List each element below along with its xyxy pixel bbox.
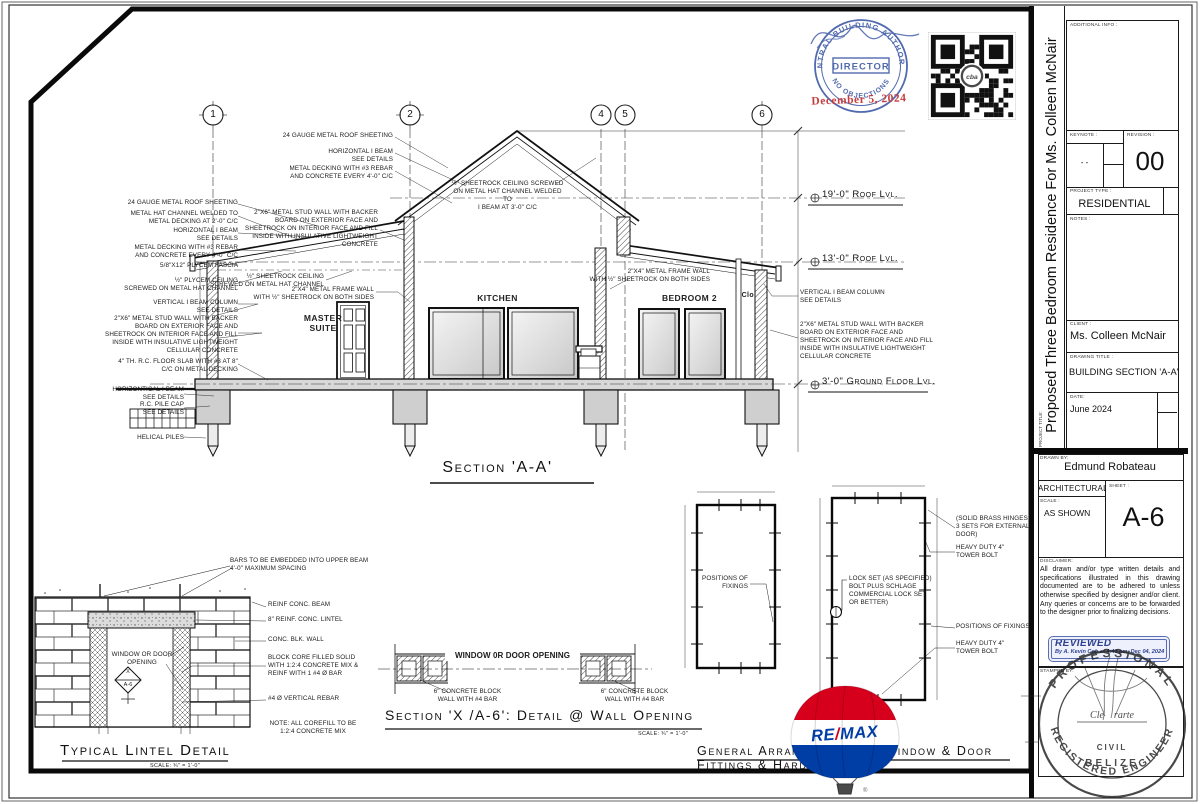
lintel-marker-x: X — [122, 669, 134, 676]
hardware-bolt-bottom: HEAVY DUTY 4" TOWER BOLT — [956, 640, 1004, 656]
keynote-label: KEYNOTE : — [1070, 133, 1097, 138]
date-label: DATE: — [1070, 395, 1085, 400]
section-title: Section 'A-A' — [400, 459, 595, 477]
qr-center-logo: cba — [966, 74, 978, 81]
wallopening-scale: SCALE: ¾" = 1'-0" — [638, 731, 688, 737]
lintel-annotation-beam: REINF CONC. BEAM — [268, 601, 330, 609]
drawing-sheet: 1 2 4 5 6 24 GAUGE METAL ROOF SHEETING M… — [0, 0, 1200, 804]
hardware-fixings-door: POSITIONS OF FIXINGS — [956, 623, 1030, 631]
hardware-fixings-window: POSITIONS OF FIXINGS — [702, 575, 748, 591]
revision-value: 00 — [1123, 146, 1177, 177]
annotation-floor-slab: 4" TH. R.C. FLOOR SLAB WITH #3 AT 8" C/C… — [118, 358, 238, 374]
lintel-annotation-bars: BARS TO BE EMBEDDED INTO UPPER BEAM 4'-0… — [230, 557, 368, 573]
drawing-title-value: BUILDING SECTION 'A-A' — [1069, 367, 1178, 377]
wallopening-block-left: 6" CONCRETE BLOCK WALL WITH #4 BAR — [425, 688, 510, 704]
annotation-stud-wall-right: 2"X6" METAL STUD WALL WITH BACKER BOARD … — [800, 321, 933, 361]
lintel-annotation-note: NOTE: ALL COREFILL TO BE 1:2:4 CONCRETE … — [262, 720, 364, 736]
room-label-closet: Clo. — [738, 292, 760, 299]
wallopening-label: WINDOW 0R DOOR OPENING — [445, 651, 580, 661]
remax-balloon-logo: RE/MAX ® — [777, 682, 913, 804]
date-value: June 2024 — [1070, 404, 1112, 414]
keynote-divider-h2 — [1103, 164, 1123, 165]
lintel-detail-title: Typical Lintel Detail — [60, 742, 230, 759]
annotation-roof-sheeting-left: 24 GAUGE METAL ROOF SHEETING — [128, 199, 238, 207]
drawing-title-label: DRAWING TITLE : — [1070, 355, 1113, 360]
disclaimer-text: All drawn and/or type written details an… — [1040, 566, 1180, 618]
date-divider-h — [1157, 412, 1177, 413]
stamp-civil-text: CIVIL — [1097, 743, 1127, 752]
revision-label: REVISION : — [1127, 133, 1155, 138]
annotation-vertical-ibeam-right: VERTICAL I BEAM COLUMN SEE DETAILS — [800, 289, 885, 305]
remax-registered-mark: ® — [863, 787, 868, 794]
scale-value: AS SHOWN — [1044, 508, 1090, 518]
grid-bubble-4: 4 — [591, 109, 611, 120]
hardware-lockset: LOCK SET (AS SPECIFIED) BOLT PLUS SCHLAG… — [849, 575, 932, 607]
lintel-annotation-core: BLOCK CORE FILLED SOLID WITH 1:2:4 CONCR… — [268, 654, 358, 678]
lintel-detail-scale: SCALE: ¾" = 1'-0" — [150, 763, 200, 769]
cba-qr-code: cba — [928, 32, 1016, 120]
grid-bubble-5: 5 — [615, 109, 635, 120]
remax-re: RE — [811, 726, 837, 746]
level-roof-19: 19'-0" Roof Lvl. — [822, 189, 898, 200]
hardware-hinges: (SOLID BRASS HINGES 3 SETS FOR EXTERNAL … — [956, 515, 1030, 539]
annotation-metal-decking: METAL DECKING WITH #3 REBAR AND CONCRETE… — [135, 244, 238, 260]
level-ground-floor: 3'-0" Ground Floor Lvl. — [822, 376, 936, 387]
annotation-stud-wall-gable: 2"X6" METAL STUD WALL WITH BACKER BOARD … — [245, 209, 378, 249]
annotation-helical-piles: HELICAL PILES — [137, 434, 184, 442]
room-label-bedroom2: BEDROOM 2 — [652, 293, 727, 303]
keynote-divider-h — [1066, 143, 1123, 144]
stamp-arc-professional: PROFESSIONAL — [1046, 646, 1179, 691]
additional-info-label: ADDITIONAL INFO : — [1070, 23, 1117, 28]
wallopening-block-right: 6" CONCRETE BLOCK WALL WITH #4 BAR — [592, 688, 677, 704]
scale-label: SCALE : — [1040, 499, 1060, 504]
annotation-horizontal-ibeam-foundation: HORIZONTICAL I BEAM SEE DETAILS — [112, 386, 184, 402]
keynote-divider-v — [1103, 143, 1104, 187]
annotation-ridge-ceiling: ½" SHEETROCK CEILING SCREWED ON METAL HA… — [450, 180, 565, 212]
hardware-bolt-top: HEAVY DUTY 4" TOWER BOLT — [956, 544, 1004, 560]
lintel-annotation-wall: CONC. BLK. WALL — [268, 636, 324, 644]
disclaimer-label: DISCLAIMER: — [1040, 559, 1073, 564]
discipline-value: ARCHITECTURAL — [1038, 484, 1105, 493]
annotation-stud-wall-left: 2"X6" METAL STUD WALL WITH BACKER BOARD … — [105, 315, 238, 355]
lintel-annotation-lintel: 8" REINF. CONC. LINTEL — [268, 616, 343, 624]
sheet-label: SHEET : — [1109, 484, 1129, 489]
grid-bubble-2: 2 — [400, 109, 420, 120]
grid-bubble-1: 1 — [203, 109, 223, 120]
project-type-label: PROJECT TYPE : — [1070, 189, 1112, 194]
wallopening-title: Section 'X /A-6': Detail @ Wall Opening — [385, 707, 694, 723]
client-value: Ms. Colleen McNair — [1070, 330, 1166, 342]
annotation-horizontal-ibeam-top: HORIZONTAL I BEAM SEE DETAILS — [328, 148, 393, 164]
annotation-hat-channel: METAL HAT CHANNEL WELDED TO METAL DECKIN… — [131, 210, 238, 226]
professional-engineer-stamp: PROFESSIONAL REGISTERED ENGINEER Cle rar… — [1015, 638, 1200, 804]
client-label: CLIENT : — [1070, 322, 1091, 327]
discipline-divider — [1038, 496, 1105, 497]
room-label-master-suite: MASTER SUITE — [292, 313, 354, 333]
titleblock-additional-info-box — [1066, 20, 1179, 132]
titleblock-notes-box — [1066, 214, 1179, 322]
sheet-number: A-6 — [1105, 502, 1182, 533]
annotation-horizontal-ibeam: HORIZONTAL I BEAM SEE DETAILS — [173, 227, 238, 243]
svg-text:PROFESSIONAL: PROFESSIONAL — [1046, 646, 1179, 691]
notes-label: NOTES : — [1070, 217, 1091, 222]
drawnby-value: Edmund Robateau — [1038, 461, 1182, 473]
date-divider-v — [1157, 392, 1158, 448]
annotation-pile-cap: R.C. PILE CAP SEE DETAILS — [140, 401, 184, 417]
project-title-label: PROJECT TITLE: — [1038, 411, 1043, 447]
lintel-marker-a6: A-6 — [118, 682, 138, 689]
remax-max: MAX — [839, 723, 879, 744]
keynote-value: - - — [1068, 158, 1101, 167]
project-title-vertical: Proposed Three Bedroom Residence For Ms.… — [1044, 23, 1060, 447]
lintel-annotation-rebar: #4 Ø VERTICAL REBAR — [268, 695, 339, 703]
cba-approval-stamp: CENTRAL BUILDING AUTHORITY DIRECTOR NO O… — [793, 14, 938, 126]
lintel-opening-label: WINDOW OR DOOR OPENING — [106, 651, 178, 667]
stamp-belize-text: BELIZE — [1085, 758, 1139, 769]
annotation-frame-wall-left: 2"X4" METAL FRAME WALL WITH ½" SHEETROCK… — [254, 286, 374, 302]
annotation-vertical-ibeam-left: VERTICAL I BEAM COLUMN SEE DETAILS — [153, 299, 238, 315]
grid-bubble-6: 6 — [752, 109, 772, 120]
project-type-divider — [1163, 187, 1164, 214]
room-label-kitchen: KITCHEN — [465, 293, 530, 303]
project-type-value: RESIDENTIAL — [1066, 198, 1163, 210]
cba-director-text: DIRECTOR — [832, 62, 889, 73]
cba-date-text: December 5, 2024 — [811, 92, 906, 107]
titleblock-strip-divider — [1064, 6, 1065, 448]
annotation-frame-wall-right: 2"X4" METAL FRAME WALL WITH ½" SHEETROCK… — [590, 268, 710, 284]
annotation-plycem-fascia: 5/8"X12" PLYCEM FASCIA — [160, 262, 238, 270]
annotation-roof-sheeting-top: 24 GAUGE METAL ROOF SHEETING — [283, 132, 393, 140]
titleblock-date-box — [1066, 392, 1179, 450]
annotation-metal-decking-top: METAL DECKING WITH #3 REBAR AND CONCRETE… — [290, 165, 393, 181]
level-roof-13: 13'-0" Roof Lvl. — [822, 253, 898, 264]
